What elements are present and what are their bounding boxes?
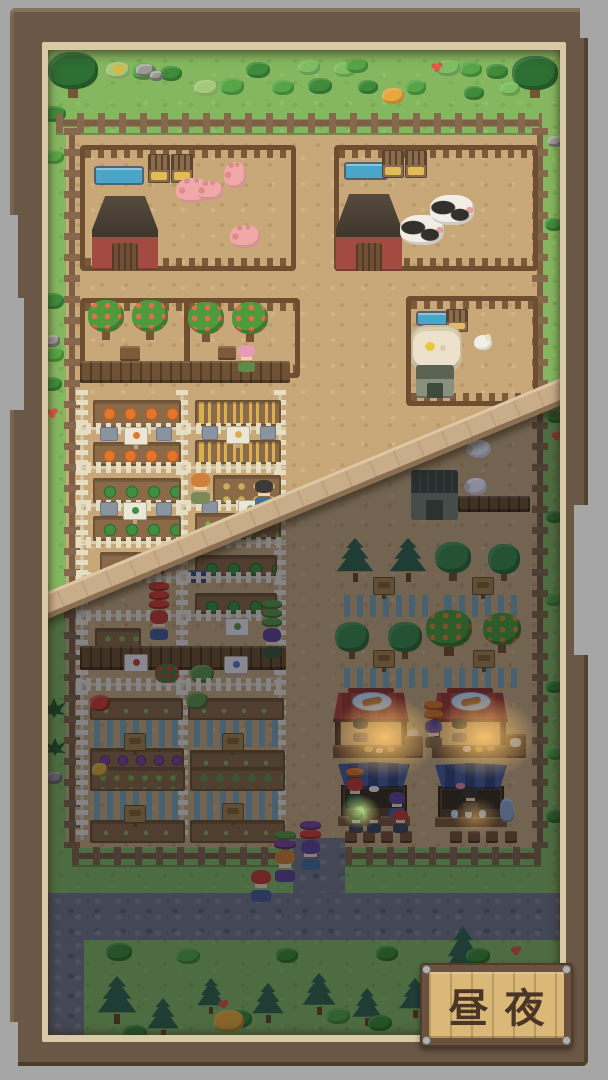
part	[149, 591, 169, 600]
crop-sign	[224, 656, 248, 674]
part	[188, 302, 224, 334]
part	[378, 655, 390, 661]
slab	[100, 502, 118, 516]
part	[234, 673, 238, 678]
part	[88, 300, 124, 332]
item	[479, 810, 486, 818]
fruit-tree	[483, 613, 521, 653]
part	[227, 738, 239, 744]
farm-map	[48, 50, 560, 1035]
fruit-tree	[88, 300, 124, 340]
part	[262, 618, 282, 627]
part	[347, 778, 363, 791]
part	[275, 850, 295, 864]
villager[interactable]	[301, 840, 320, 870]
part	[452, 718, 467, 729]
crop-bed	[190, 820, 285, 843]
villager[interactable]	[347, 778, 363, 806]
barn	[92, 196, 158, 270]
wood-sign	[222, 733, 244, 751]
part	[263, 628, 281, 642]
slab	[202, 426, 218, 440]
part	[238, 345, 255, 357]
part	[232, 302, 268, 334]
item	[510, 738, 521, 747]
wood-sign	[473, 650, 495, 668]
part	[275, 870, 295, 882]
part	[353, 733, 368, 742]
part	[133, 750, 137, 755]
part	[463, 802, 478, 812]
bush	[160, 66, 182, 81]
part	[488, 544, 520, 574]
slab	[156, 427, 172, 441]
part	[367, 824, 381, 833]
part	[440, 345, 446, 351]
part	[427, 383, 442, 398]
villager[interactable]	[393, 810, 408, 833]
cow[interactable]	[430, 195, 474, 225]
part	[463, 786, 478, 798]
part	[235, 635, 239, 640]
part	[466, 445, 473, 453]
bush	[406, 80, 426, 95]
chicken[interactable]	[474, 335, 492, 350]
part	[231, 750, 235, 755]
part	[482, 667, 486, 672]
fruit-tree	[188, 302, 224, 342]
part	[382, 594, 386, 599]
bush	[460, 62, 482, 77]
table	[218, 346, 236, 358]
part	[300, 830, 321, 839]
part	[129, 810, 141, 816]
crop-bed	[95, 628, 141, 648]
crop-sign	[123, 502, 147, 520]
part	[238, 362, 255, 372]
day-night-sign-label: 昼夜	[429, 972, 564, 1038]
bush	[298, 60, 320, 75]
part	[133, 659, 140, 666]
bush	[123, 1025, 147, 1035]
part	[336, 194, 402, 237]
bush	[358, 80, 378, 94]
bush	[246, 62, 270, 78]
bush	[176, 948, 200, 964]
item	[475, 747, 483, 752]
part	[233, 661, 240, 668]
part	[406, 573, 412, 582]
tree	[335, 622, 369, 659]
slab	[156, 502, 172, 516]
part	[274, 831, 296, 840]
part	[347, 795, 363, 806]
item	[451, 810, 458, 818]
part	[435, 817, 507, 827]
part	[408, 167, 425, 175]
item	[487, 746, 495, 751]
part	[251, 890, 271, 902]
crop-sign	[225, 618, 249, 636]
frame-notch	[10, 215, 18, 299]
part	[349, 810, 363, 820]
part	[161, 1030, 166, 1035]
part	[385, 167, 402, 175]
part	[191, 473, 210, 487]
part	[424, 710, 443, 719]
part	[209, 1007, 213, 1014]
water-trough	[416, 311, 448, 326]
stool	[381, 831, 393, 841]
part	[301, 859, 320, 870]
part	[447, 310, 467, 322]
villager[interactable]	[349, 810, 363, 833]
part	[413, 1010, 418, 1018]
log-fence	[345, 847, 541, 865]
bush	[220, 78, 244, 95]
game-screenshot: { "sign": { "text": "昼夜" }, "palette": {…	[0, 0, 608, 1080]
pig[interactable]	[197, 181, 223, 200]
part	[263, 647, 281, 658]
part	[426, 500, 443, 520]
part	[424, 701, 443, 710]
item	[463, 746, 471, 752]
part	[150, 610, 168, 624]
part	[236, 443, 240, 448]
part	[483, 613, 521, 645]
frame-notch	[10, 1022, 18, 1066]
part	[300, 821, 321, 830]
log-fence	[56, 113, 542, 133]
part	[388, 622, 422, 652]
part	[451, 692, 491, 711]
part	[317, 1007, 322, 1015]
bush	[48, 150, 64, 164]
rivet-icon	[422, 1036, 431, 1045]
part	[151, 172, 168, 180]
flower	[510, 946, 522, 955]
part	[367, 810, 381, 820]
pile	[186, 692, 208, 709]
part	[48, 52, 98, 89]
plank-fence	[80, 646, 286, 670]
wood-sign	[472, 577, 494, 595]
item	[369, 786, 379, 792]
log-fence	[72, 847, 294, 865]
wood-sign	[124, 733, 146, 751]
bush	[326, 1008, 350, 1024]
part	[266, 1015, 271, 1023]
part	[262, 609, 282, 618]
part	[146, 998, 180, 1032]
part	[133, 519, 137, 524]
tomato-plant	[155, 664, 179, 683]
bush	[272, 80, 294, 95]
bush	[500, 82, 520, 96]
part	[356, 243, 382, 271]
part	[301, 973, 337, 1009]
bush	[466, 948, 490, 964]
bush	[48, 347, 64, 362]
part	[452, 733, 467, 742]
flower	[218, 1000, 229, 1008]
bush	[376, 946, 398, 961]
part	[132, 300, 168, 332]
item	[376, 748, 383, 753]
part	[393, 810, 408, 820]
bush	[106, 943, 132, 961]
flower	[110, 64, 128, 74]
part	[411, 470, 458, 493]
part	[134, 671, 138, 676]
part	[234, 623, 241, 630]
wood-sign	[373, 650, 395, 668]
wood-sign	[222, 803, 244, 821]
flower	[48, 408, 59, 418]
part	[150, 629, 168, 640]
part	[346, 768, 364, 777]
villager[interactable]	[263, 628, 281, 658]
villager[interactable]	[452, 718, 467, 742]
part	[235, 431, 242, 438]
part	[129, 738, 141, 744]
stool	[450, 831, 462, 841]
slab	[100, 427, 118, 441]
part	[262, 600, 282, 609]
rivet-icon	[562, 1036, 571, 1045]
jar	[500, 798, 514, 822]
part	[172, 155, 192, 170]
villager[interactable]	[238, 345, 255, 372]
day-night-sign[interactable]: 昼夜	[420, 963, 573, 1047]
frame-notch	[574, 505, 588, 655]
tree	[48, 52, 98, 98]
pig[interactable]	[224, 162, 246, 188]
part	[335, 622, 369, 652]
part	[485, 334, 491, 342]
rock	[48, 335, 60, 347]
wood-sign	[373, 577, 395, 595]
crop-bed	[90, 820, 185, 843]
part	[335, 538, 375, 576]
bush	[308, 78, 332, 94]
fruit-tree	[232, 302, 268, 342]
part	[425, 720, 442, 733]
picket-fence	[76, 678, 284, 691]
tree	[435, 542, 471, 581]
tree	[488, 544, 520, 581]
bush	[486, 64, 508, 79]
bush	[368, 1015, 392, 1031]
part	[255, 480, 273, 493]
flower	[551, 432, 560, 440]
picket-fence	[76, 462, 286, 473]
road	[48, 938, 84, 1035]
part	[477, 582, 489, 588]
part	[416, 365, 454, 379]
bush	[547, 411, 560, 423]
part	[460, 696, 481, 707]
item	[364, 746, 373, 752]
plank-fence	[458, 496, 530, 512]
part	[481, 594, 485, 599]
villager[interactable]	[367, 810, 381, 833]
crop-sign	[226, 426, 250, 444]
bush	[382, 88, 404, 104]
part	[274, 840, 296, 849]
pile	[92, 763, 108, 777]
sheep[interactable]	[465, 478, 487, 495]
bush	[547, 748, 560, 760]
crop-bed	[190, 767, 285, 791]
pine-tree	[388, 538, 428, 582]
part	[114, 1014, 120, 1024]
picket-fence	[76, 610, 286, 621]
part	[353, 718, 368, 729]
slab	[260, 426, 276, 440]
part	[426, 610, 472, 647]
part	[425, 342, 435, 351]
bush	[546, 810, 560, 823]
bush	[546, 681, 560, 693]
rock	[548, 136, 560, 147]
bush	[194, 80, 218, 96]
part	[133, 432, 140, 439]
bush	[464, 86, 484, 100]
pine-tree	[196, 978, 226, 1014]
bush	[546, 511, 560, 523]
part	[425, 737, 442, 748]
wood-sign	[124, 805, 146, 823]
stool	[468, 831, 480, 841]
part	[478, 655, 490, 661]
part	[383, 151, 403, 165]
villager[interactable]	[353, 718, 368, 742]
part	[92, 196, 158, 237]
part	[149, 600, 169, 609]
part	[382, 667, 386, 672]
pig[interactable]	[230, 225, 260, 248]
pine-tree	[251, 983, 285, 1023]
villager[interactable]	[150, 610, 168, 640]
part	[251, 870, 271, 884]
part	[388, 538, 428, 576]
part	[231, 820, 235, 825]
part	[149, 582, 169, 591]
table	[120, 346, 140, 359]
rivet-icon	[562, 965, 571, 974]
plank-fence	[80, 361, 290, 383]
pine-tree	[335, 538, 375, 582]
part	[406, 151, 426, 165]
part	[353, 573, 359, 582]
feed-trough	[148, 154, 170, 183]
crop-sign	[124, 654, 148, 672]
bush	[346, 58, 368, 73]
water-trough	[94, 166, 144, 185]
stool	[505, 831, 517, 841]
villager[interactable]	[425, 720, 442, 748]
part	[96, 976, 138, 1017]
fruit-tree	[426, 610, 472, 656]
villager[interactable]	[463, 786, 478, 812]
frame-notch	[10, 298, 24, 410]
part	[251, 983, 285, 1017]
part	[149, 155, 169, 170]
rock	[150, 71, 163, 81]
fruit-tree	[132, 300, 168, 340]
table	[405, 736, 423, 756]
stool	[486, 831, 498, 841]
barn	[336, 194, 402, 271]
part	[361, 696, 382, 707]
bush	[276, 948, 298, 963]
part	[133, 822, 137, 827]
part	[134, 444, 138, 449]
part	[301, 840, 320, 854]
rock	[48, 772, 62, 784]
part	[227, 808, 239, 814]
part	[112, 243, 138, 270]
part	[464, 483, 471, 491]
stone-coop	[416, 365, 454, 398]
feed-trough	[405, 150, 427, 178]
part	[349, 824, 363, 833]
part	[191, 492, 210, 504]
shed	[411, 470, 458, 520]
bush	[214, 1010, 244, 1032]
part	[389, 792, 405, 804]
pine-tree	[146, 998, 180, 1035]
frame-notch	[580, 8, 588, 38]
pine-tree	[96, 976, 138, 1024]
villager[interactable]	[191, 473, 210, 504]
villager[interactable]	[275, 850, 295, 882]
part	[132, 507, 139, 514]
item	[387, 747, 395, 752]
part	[352, 692, 392, 711]
flower	[430, 62, 444, 72]
part	[435, 542, 471, 573]
part	[378, 582, 390, 588]
crop-sign	[124, 427, 148, 445]
feed-trough	[382, 150, 404, 178]
part	[393, 824, 408, 833]
villager[interactable]	[251, 870, 271, 902]
rivet-icon	[422, 965, 431, 974]
pile	[90, 695, 110, 711]
